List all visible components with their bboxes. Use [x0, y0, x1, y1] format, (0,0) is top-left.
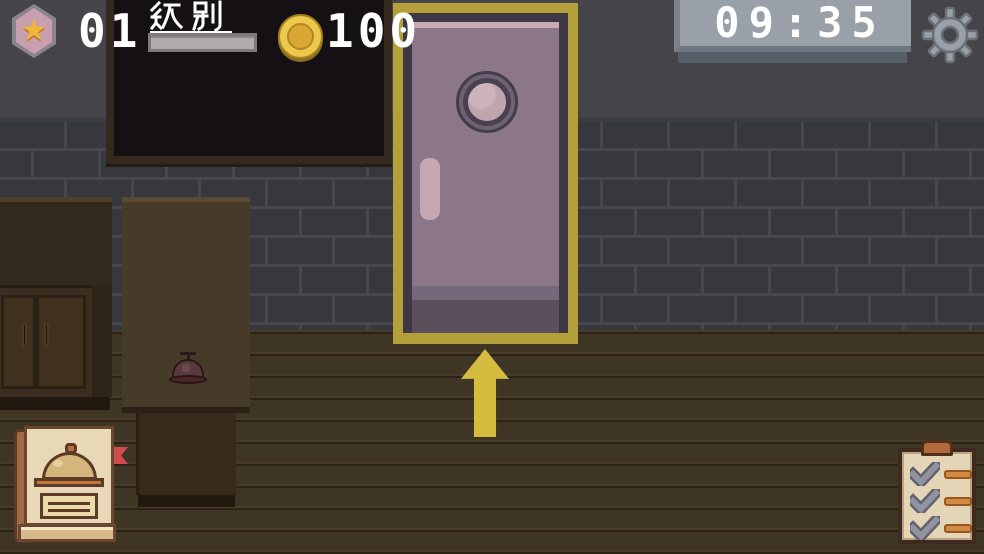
book-cover: [24, 426, 114, 526]
task-text-bar: [944, 524, 972, 533]
checkmark-icon: [910, 489, 940, 513]
counter-base: [138, 495, 235, 507]
door-frame: [403, 13, 568, 333]
counter-front: [136, 413, 236, 495]
level-value: 01: [78, 8, 141, 54]
porthole-glass: [463, 78, 511, 126]
service-bell[interactable]: [168, 352, 208, 384]
cabinet-side: [92, 285, 112, 397]
cloche-icon: [42, 452, 97, 480]
game-screen: ★ 01 100 09:35: [0, 0, 984, 554]
door-slab: [412, 22, 559, 333]
task-row: [910, 489, 972, 515]
bell-base: [169, 375, 207, 384]
timer-value: 09:35: [705, 2, 885, 44]
clipboard-clip: [921, 440, 953, 456]
menu-book-button[interactable]: [8, 426, 126, 548]
door-top-highlight: [412, 22, 559, 28]
label-line: [48, 502, 90, 505]
timer-panel: 09:35: [674, 0, 911, 52]
cloche-tray: [34, 478, 104, 487]
coin-count: 100: [326, 8, 421, 54]
door-kickplate-lower: [412, 300, 559, 333]
porthole-window-icon: [456, 71, 518, 133]
coin-inner: [287, 23, 314, 50]
checkmark-icon: [910, 516, 940, 540]
xp-progress-bar: [148, 33, 257, 52]
cabinet-base: [0, 397, 110, 410]
checkmark-icon: [910, 462, 940, 486]
cabinet-front: [0, 285, 92, 397]
gear-icon[interactable]: [921, 6, 979, 64]
clipboard-board: [898, 448, 976, 544]
door-kickplate: [412, 286, 559, 300]
level-badge: ★: [12, 4, 56, 58]
level-label-text: [148, 0, 234, 34]
timer-panel-shadow: [678, 52, 907, 63]
coin-icon: [278, 14, 323, 59]
cloche-highlight: [53, 460, 63, 467]
cabinet-door-left: [1, 295, 36, 389]
task-text-bar: [944, 470, 972, 479]
bell-highlight: [182, 364, 190, 372]
label-line: [48, 509, 90, 512]
cabinet: [0, 197, 112, 410]
task-row: [910, 462, 972, 488]
task-clipboard-button[interactable]: [896, 440, 978, 546]
star-badge-icon: ★: [21, 16, 48, 46]
door-handle: [420, 158, 440, 220]
task-text-bar: [944, 497, 972, 506]
page-highlight: [21, 527, 113, 530]
level-badge-inner: ★: [16, 8, 52, 54]
cabinet-handle-right: [44, 323, 49, 347]
book-label-plate: [40, 493, 98, 519]
book-pages: [18, 524, 116, 542]
cabinet-upper: [0, 202, 112, 285]
task-row: [910, 516, 972, 542]
cabinet-handle-left: [22, 323, 27, 347]
